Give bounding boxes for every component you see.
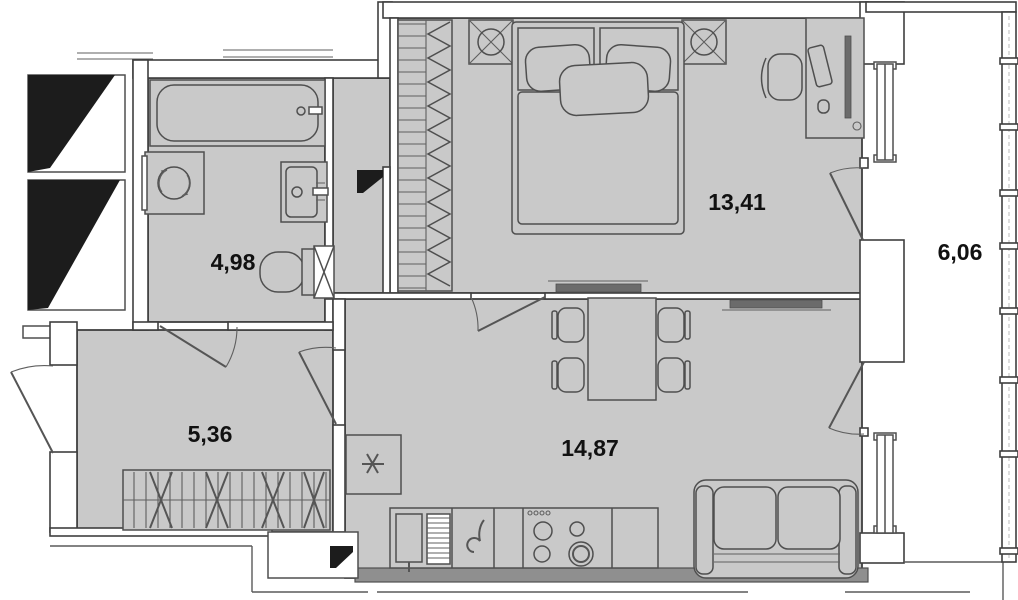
wall-nook-partition [383,167,390,293]
sofa-cushion [714,487,776,549]
wall-bathroom-bottom-left [133,322,158,330]
tv-icon [556,284,641,292]
monitor-icon [845,36,851,118]
wall-right-bit-2 [860,428,868,436]
shaft-box-top [28,75,125,172]
floor-plan-drawing: 4,98 5,36 13,41 14,87 6,06 [0,0,1018,600]
area-label-bathroom: 4,98 [211,249,256,275]
wall-hall-left-lower [50,452,77,532]
door-swing-icon [11,366,53,372]
bathtub-tap [309,107,322,114]
sofa [694,480,858,578]
wardrobe-hallway [123,470,330,530]
utility-inset-box [268,532,358,578]
wall-top-left-outer [133,60,398,78]
bathroom-sink-icon [281,162,328,222]
window-living [874,433,896,533]
shaft-box-bottom [28,180,125,310]
nightstand-left [469,20,513,64]
pillow-icon [559,62,649,117]
wall-right-bit-1 [860,158,868,168]
area-label-living-kitchen: 14,87 [561,435,619,461]
nightstand-right [682,20,726,64]
wall-balcony-top [866,2,1016,12]
wall-bedroom-top [383,2,868,18]
balcony-glazing [1000,12,1018,562]
fridge [346,435,401,494]
wall-bathroom-bottom-right [228,322,333,330]
wall-wardrobe-back [390,18,398,293]
area-label-balcony: 6,06 [938,239,983,265]
vent-duct-icon [314,246,334,298]
sofa-armrest [696,486,713,574]
floor-plan-page: 4,98 5,36 13,41 14,87 6,06 [0,0,1018,600]
toilet-icon [260,249,316,295]
entrance-stub-wall [23,326,53,338]
wardrobe-bedroom [398,20,452,291]
area-label-hallway: 5,36 [188,421,233,447]
wall-living-left-upper [333,299,345,350]
dish-rack-icon [427,514,450,564]
wall-partition-left-segment [325,293,471,299]
wall-right-stub-middle [860,240,904,362]
dining-chair-icon [552,358,584,392]
bathtub-inner [157,85,318,141]
area-label-bedroom: 13,41 [708,189,766,215]
dining-chair-icon [552,308,584,342]
tv-icon [730,300,822,308]
wall-hall-left-upper [50,322,77,365]
wall-living-left-lower [333,425,345,532]
dining-table-icon [588,298,656,400]
mouse-icon [818,100,829,113]
door-leaf [11,372,53,453]
wall-right-stub-bottom [860,533,904,563]
sofa-armrest [839,486,856,574]
door-entrance [11,366,53,453]
kitchen-cabinet [396,514,422,562]
bed [512,22,684,234]
dining-chair-icon [658,308,690,342]
sofa-cushion [778,487,840,549]
kitchen-counter [390,508,658,572]
dining-chair-icon [658,358,690,392]
washing-machine-icon [142,152,204,214]
window-bedroom [874,62,896,162]
